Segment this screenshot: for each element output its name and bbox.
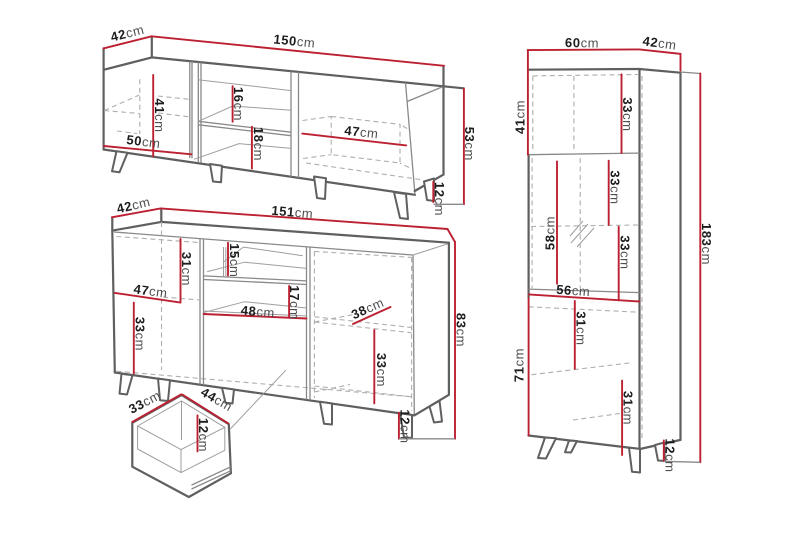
svg-text:12cm: 12cm xyxy=(432,182,447,216)
svg-text:56cm: 56cm xyxy=(556,282,591,299)
svg-text:33cm: 33cm xyxy=(133,317,148,351)
svg-text:15cm: 15cm xyxy=(227,243,242,277)
svg-text:33cm: 33cm xyxy=(608,170,623,204)
svg-text:71cm: 71cm xyxy=(512,348,527,382)
svg-text:17cm: 17cm xyxy=(287,285,302,319)
svg-text:60cm: 60cm xyxy=(565,35,599,51)
svg-text:12cm: 12cm xyxy=(196,418,211,452)
svg-text:12cm: 12cm xyxy=(398,409,413,443)
svg-text:33cm: 33cm xyxy=(374,353,389,387)
svg-text:41cm: 41cm xyxy=(152,98,167,132)
svg-text:48cm: 48cm xyxy=(240,303,275,321)
svg-text:18cm: 18cm xyxy=(251,127,266,161)
svg-text:183cm: 183cm xyxy=(699,223,714,265)
svg-text:31cm: 31cm xyxy=(621,391,636,425)
svg-text:12cm: 12cm xyxy=(662,438,677,472)
svg-text:31cm: 31cm xyxy=(574,311,589,345)
svg-text:33cm: 33cm xyxy=(618,235,633,269)
svg-text:53cm: 53cm xyxy=(462,127,477,161)
svg-text:58cm: 58cm xyxy=(543,216,558,250)
svg-text:33cm: 33cm xyxy=(620,97,635,131)
svg-text:31cm: 31cm xyxy=(179,252,194,286)
svg-text:41cm: 41cm xyxy=(513,100,528,134)
svg-text:16cm: 16cm xyxy=(231,87,246,121)
svg-text:83cm: 83cm xyxy=(454,313,469,347)
